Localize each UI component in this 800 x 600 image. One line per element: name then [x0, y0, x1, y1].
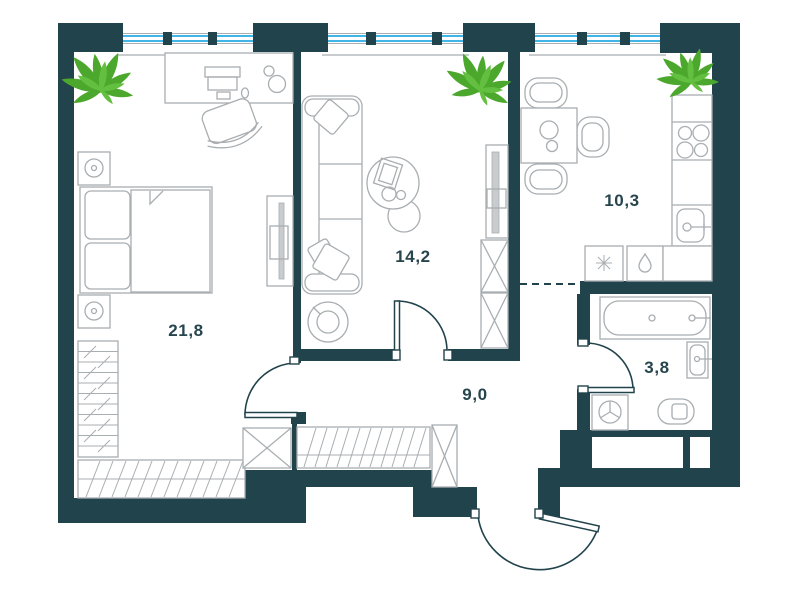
bedroom-tv-panel	[279, 203, 284, 279]
bedroom-wardrobe-x	[243, 428, 291, 468]
window-kitchen	[529, 32, 666, 55]
pouf	[308, 302, 348, 342]
wall-bedroom-living	[293, 52, 301, 363]
washer-cabinet	[627, 246, 663, 281]
dining-chair-right	[577, 117, 609, 157]
bedroom-furniture	[78, 53, 293, 498]
bedroom-tv-cabinet	[267, 196, 293, 286]
area-label-kitchen: 10,3	[604, 191, 640, 210]
door-bathroom	[578, 339, 634, 393]
window-bedroom	[117, 32, 259, 55]
toilet	[658, 399, 694, 424]
dining-chair-bottom	[525, 164, 567, 194]
hallway-wardrobe-x	[432, 425, 457, 487]
floor-plan-canvas: 21,8 14,2 9,0 10,3 3,8	[0, 0, 800, 600]
nightstand-bottom	[78, 295, 110, 328]
floor-plan: 21,8 14,2 9,0 10,3 3,8	[0, 0, 800, 600]
door-leaf-living	[395, 301, 400, 351]
wall-bottom-hallway	[297, 470, 433, 487]
wall-living-hall-west	[301, 349, 397, 361]
asterisk-icon	[596, 255, 612, 271]
window-living	[322, 32, 469, 55]
duct-niche-2	[690, 437, 710, 468]
wall-living-kitchen	[508, 52, 520, 349]
windows	[117, 32, 666, 55]
nightstand-top	[78, 152, 110, 185]
bathtub	[600, 297, 711, 339]
area-label-living-room: 14,2	[395, 247, 431, 266]
duct-niche-1	[592, 437, 683, 468]
wall-right	[712, 23, 740, 487]
area-label-bedroom: 21,8	[168, 321, 204, 340]
hallway-closet-hatch	[297, 427, 430, 468]
living-tv-panel	[492, 152, 499, 233]
washing-machine	[592, 395, 628, 430]
wall-left	[58, 23, 74, 523]
dining-chair-top	[525, 78, 567, 108]
wall-top-pier-2	[253, 23, 328, 52]
counter-corner	[663, 246, 712, 281]
coffee-table	[367, 157, 420, 232]
desk-chair	[196, 95, 265, 155]
sofa	[302, 96, 362, 294]
door-leaf-bathroom	[586, 388, 634, 393]
bed	[80, 187, 212, 293]
door-arc-bathroom	[586, 343, 633, 390]
wall-vestibule-left	[413, 487, 477, 517]
living-wardrobe-x	[481, 240, 508, 348]
kitchen-furniture	[521, 78, 712, 281]
dining-table	[521, 78, 609, 194]
wall-bottom-bedroom	[58, 498, 260, 523]
wall-top-pier-3	[463, 23, 535, 52]
door-arc-bedroom	[245, 363, 297, 415]
wall-kitchen-bath	[580, 281, 712, 294]
wall-bottom-corner	[243, 470, 306, 523]
area-label-bathroom: 3,8	[644, 358, 669, 377]
wall-closet-divider	[292, 424, 297, 470]
door-living	[392, 301, 452, 360]
area-label-hallway: 9,0	[462, 385, 487, 404]
wall-bath-left-lower	[577, 389, 590, 434]
washbasin	[687, 342, 712, 378]
door-leaf-entrance	[539, 513, 599, 532]
wall-living-hall-east	[448, 349, 520, 361]
door-entrance	[471, 509, 599, 570]
desk	[165, 53, 293, 103]
door-leaf-bedroom	[245, 413, 297, 418]
living-room-furniture	[302, 96, 508, 348]
door-bedroom	[245, 357, 299, 418]
wall-bath-left-upper	[577, 294, 590, 345]
bedroom-closet-hatch	[78, 460, 245, 498]
door-arc-living	[397, 301, 447, 351]
bedroom-shelving	[78, 341, 118, 457]
living-tv-unit	[486, 145, 508, 238]
